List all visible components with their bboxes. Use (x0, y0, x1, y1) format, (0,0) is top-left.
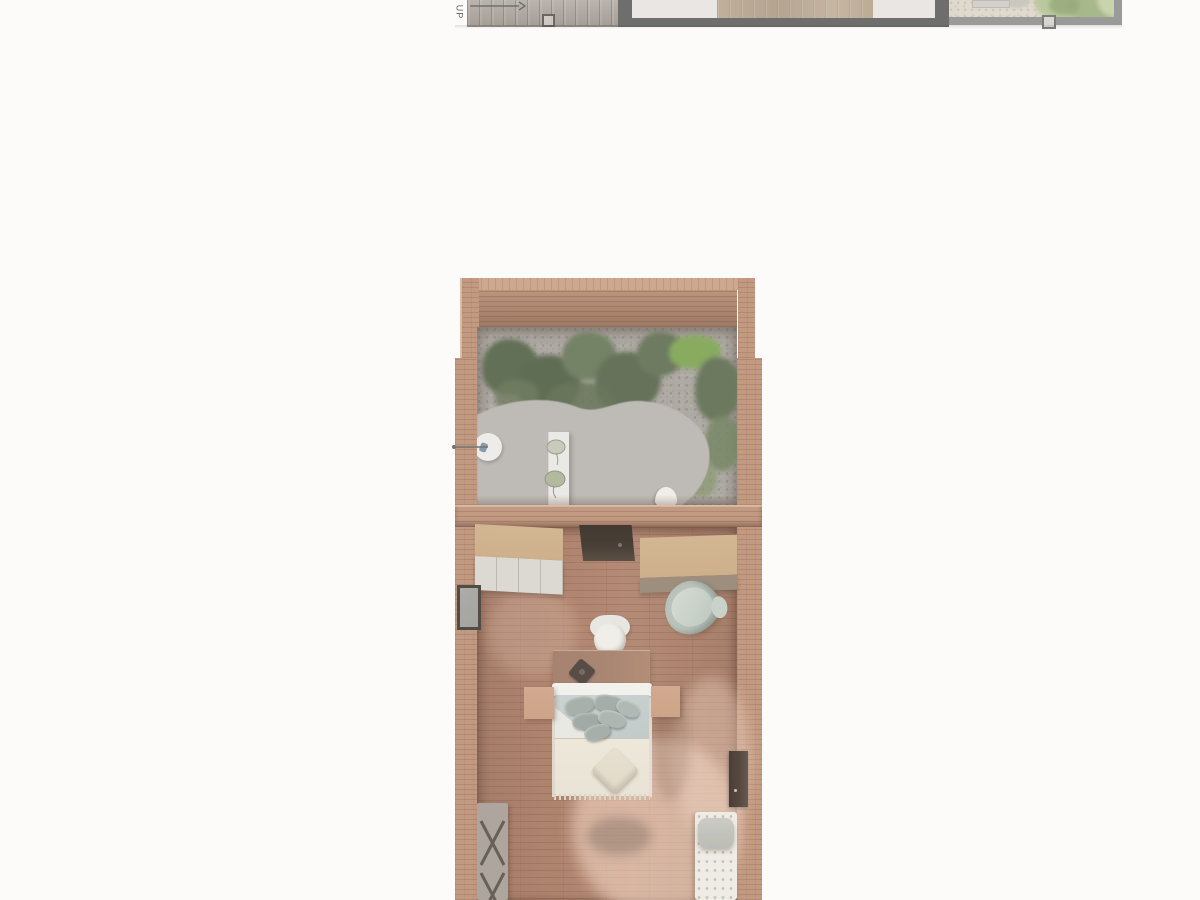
wall-shadow (477, 495, 737, 505)
grey-wall-return (1114, 0, 1122, 25)
wardrobe-drawers (475, 556, 563, 595)
strip-drop-shadow (455, 25, 1122, 29)
double-bed (552, 683, 652, 800)
luggage-rack (477, 803, 508, 900)
up-label-text: UP (454, 4, 464, 19)
lamp-shade (578, 668, 586, 676)
architectural-plan-render: UP (0, 0, 1200, 900)
side-window (457, 585, 481, 630)
up-direction-arrow-icon (468, 0, 528, 13)
wall-segment-mid (935, 0, 949, 27)
courtyard-top-wall-face (477, 290, 737, 327)
window-glass (460, 588, 478, 627)
pillow-group (560, 695, 644, 743)
desk (553, 650, 650, 687)
potted-plants (543, 437, 575, 501)
chaise-lounge (695, 812, 737, 900)
courtyard-garden (477, 327, 737, 505)
nightstand-right (651, 686, 680, 717)
door-knob (734, 789, 737, 792)
nightstand-left (524, 687, 554, 719)
interior-light-floor-left (632, 0, 717, 18)
door-panel (729, 751, 748, 807)
wardrobe-left (475, 524, 563, 595)
middle-wall (455, 505, 762, 527)
grey-wall-band (949, 17, 1122, 25)
interior-light-floor-right (873, 0, 935, 18)
rack-cross-straps (477, 803, 508, 900)
right-wall-upper (738, 278, 755, 358)
credenza-top (640, 535, 737, 578)
wardrobe-top (475, 524, 563, 561)
shower-arm-icon (450, 440, 490, 454)
chaise-bolster (698, 818, 734, 848)
paver (972, 0, 1010, 8)
floor-dark-shadow (587, 817, 651, 855)
niche-detail (618, 543, 622, 547)
wall-niche (578, 525, 635, 561)
courtyard-top-wall-cap (460, 278, 755, 290)
up-label: UP (451, 0, 467, 23)
bed-fringe (554, 794, 650, 800)
curved-concrete-path (477, 327, 737, 505)
interior-wood-floor (717, 0, 873, 18)
